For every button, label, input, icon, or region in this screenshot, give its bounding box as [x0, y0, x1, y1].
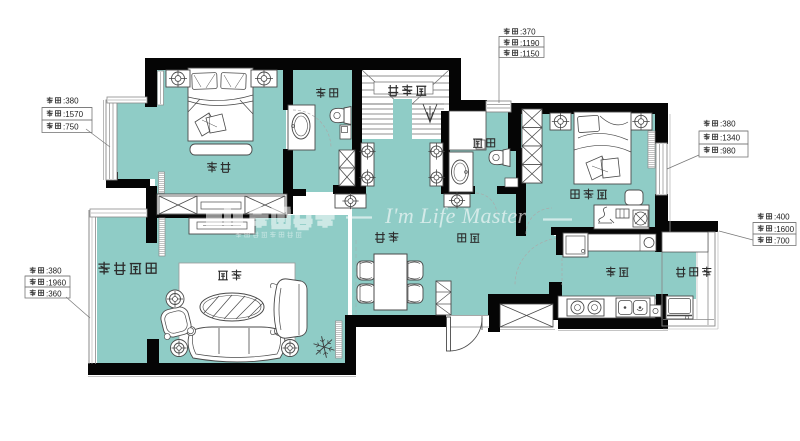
svg-text::1340: :1340 [720, 133, 741, 142]
svg-text::1600: :1600 [774, 225, 795, 234]
svg-text::400: :400 [774, 213, 790, 222]
svg-text::980: :980 [720, 146, 736, 155]
svg-text::380: :380 [46, 267, 62, 276]
svg-text::1570: :1570 [63, 110, 84, 119]
svg-text::1150: :1150 [520, 49, 540, 58]
svg-text::360: :360 [46, 289, 62, 298]
svg-text::1960: :1960 [46, 278, 67, 287]
svg-text::1190: :1190 [520, 39, 540, 48]
svg-text::700: :700 [774, 236, 790, 245]
svg-text:I'm Life Master: I'm Life Master [384, 203, 527, 228]
svg-text::370: :370 [520, 28, 536, 37]
svg-text::380: :380 [720, 120, 736, 129]
svg-text::380: :380 [63, 97, 79, 106]
svg-text::750: :750 [63, 122, 79, 131]
